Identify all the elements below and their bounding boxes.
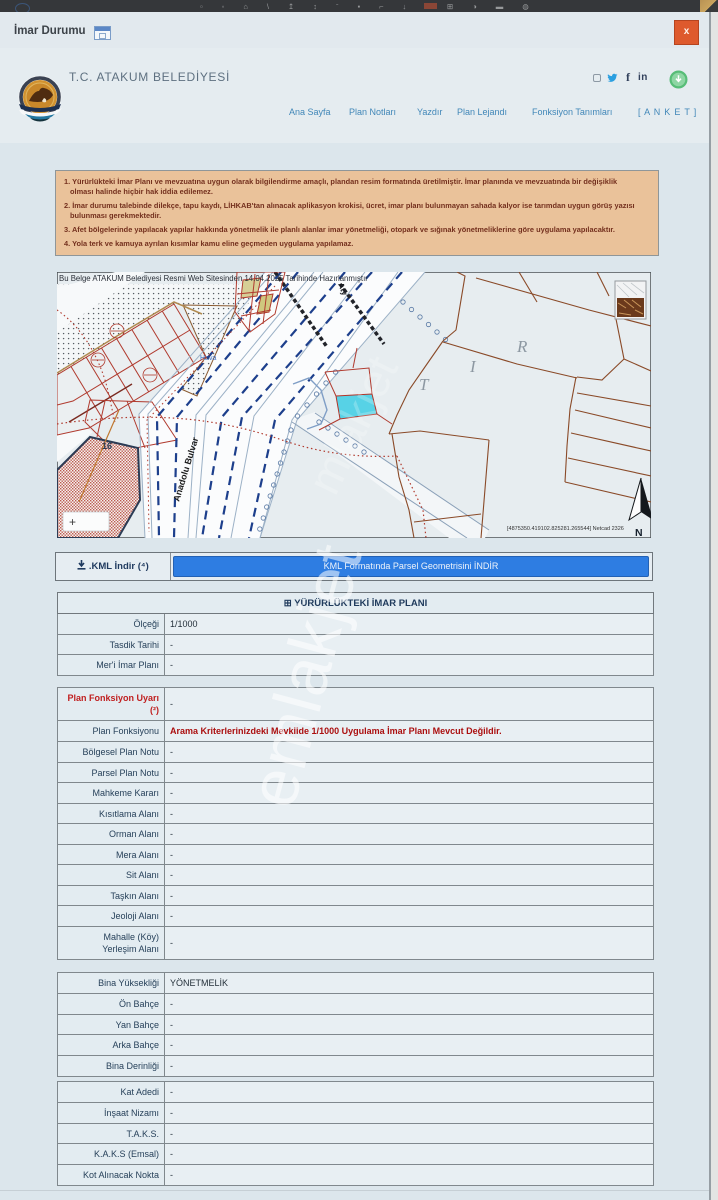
svg-text:T: T xyxy=(419,375,430,394)
svg-text:N: N xyxy=(635,527,643,538)
svg-text:[4875350.419102.825281.265544]: [4875350.419102.825281.265544] Netcad 23… xyxy=(507,526,624,532)
svg-text:16: 16 xyxy=(102,441,112,451)
svg-text:R: R xyxy=(516,337,528,356)
svg-text:+: + xyxy=(69,515,76,529)
svg-text:Bu Belge ATAKUM Belediyesi Res: Bu Belge ATAKUM Belediyesi Resmi Web Sit… xyxy=(59,274,368,283)
